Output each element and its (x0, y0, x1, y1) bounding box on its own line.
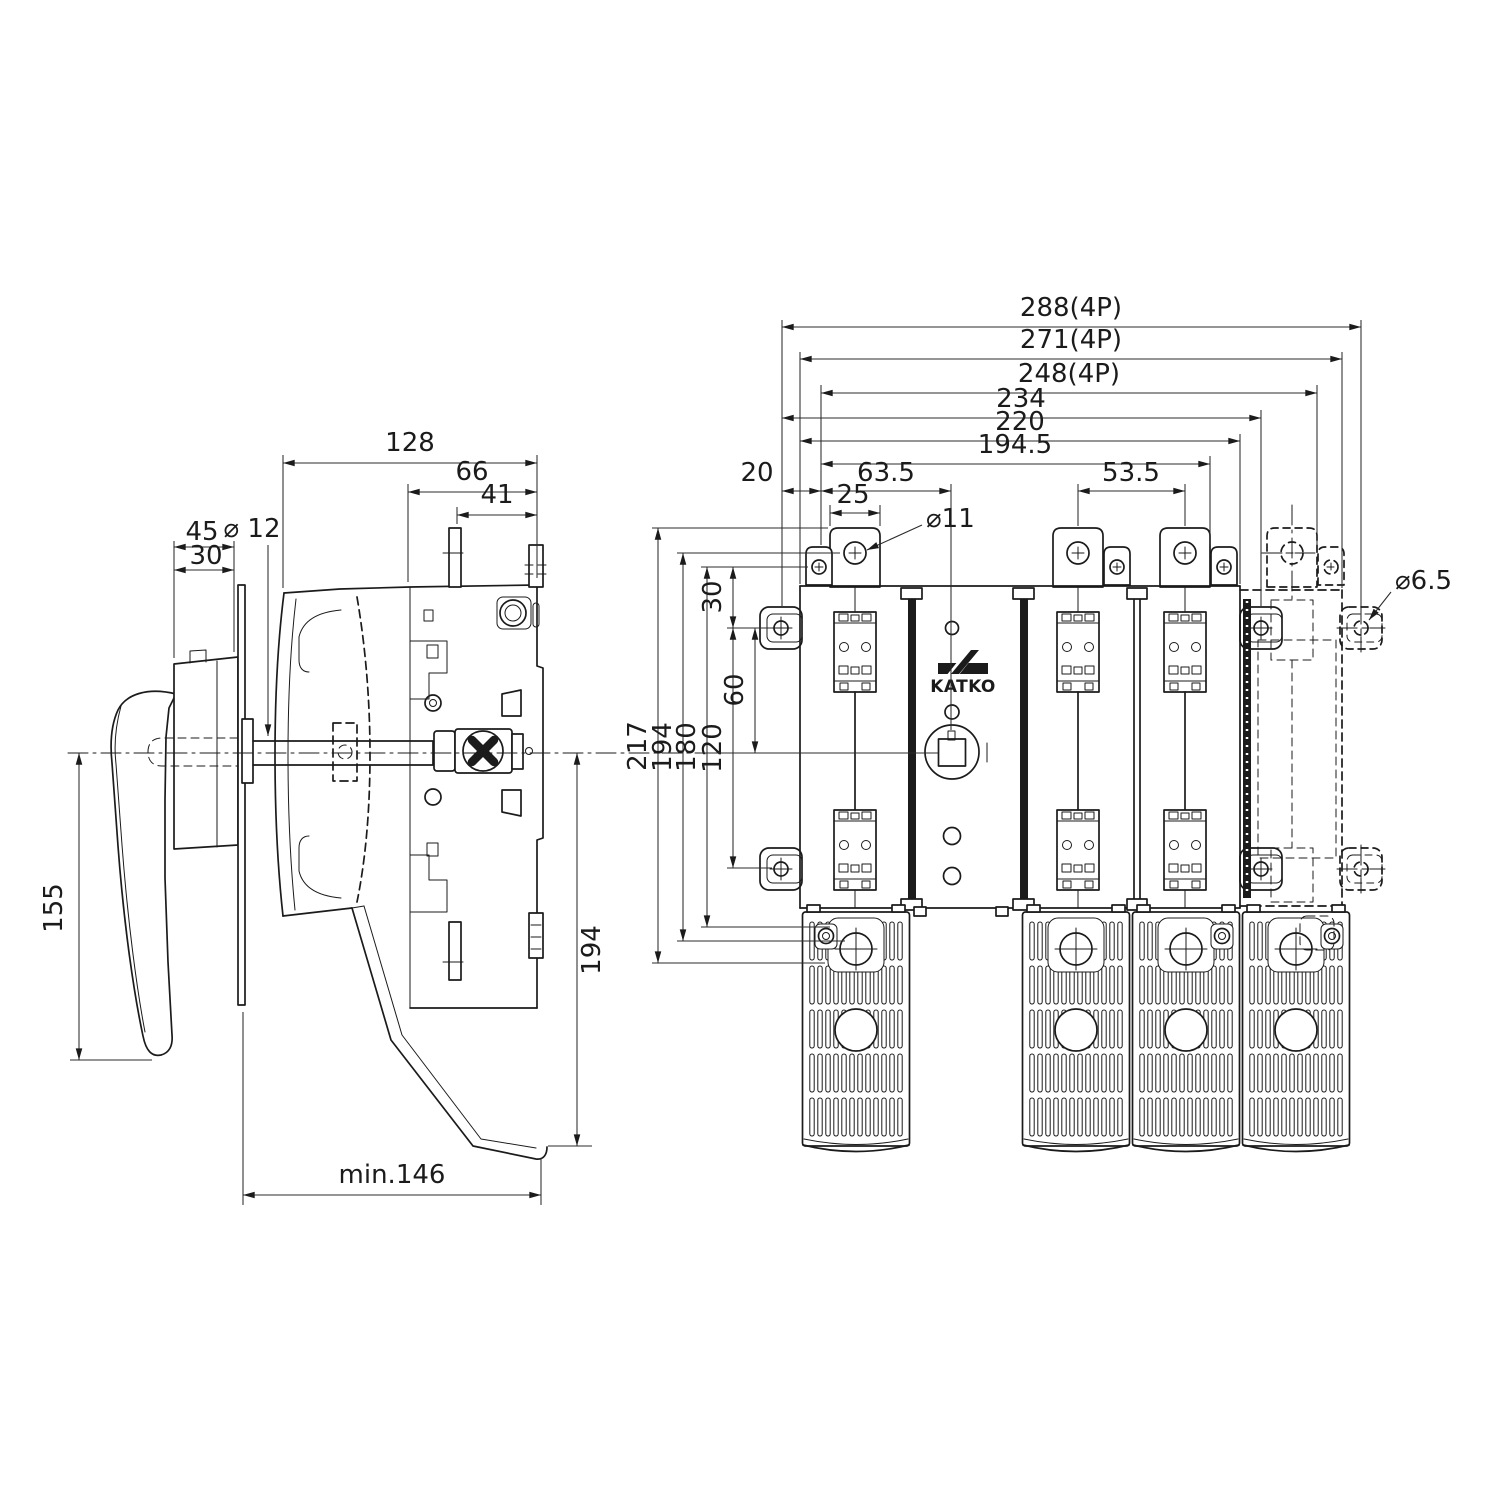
dim-155: 155 (39, 883, 69, 933)
dim-194-side: 194 (577, 925, 607, 975)
side-view: 128 66 41 45 30 ⌀ 12 155 194 min.146 (39, 428, 700, 1205)
dim-53-5: 53.5 (1102, 458, 1160, 488)
shaft-collar (242, 719, 253, 783)
dim-128: 128 (385, 428, 435, 458)
dim-30: 30 (189, 541, 222, 571)
dim-dia6-5: ⌀6.5 (1395, 566, 1452, 596)
katko-logo: KATKO (930, 646, 995, 697)
dim-60: 60 (720, 673, 750, 706)
technical-drawing-page: 128 66 41 45 30 ⌀ 12 155 194 min.146 (0, 0, 1500, 1500)
dim-dia11: ⌀11 (926, 504, 975, 534)
logo-text: KATKO (930, 677, 995, 697)
dim-194-5: 194.5 (978, 430, 1052, 460)
dim-25: 25 (836, 480, 869, 510)
dim-30-front: 30 (698, 580, 728, 613)
handle (111, 691, 176, 1055)
dim-120: 120 (698, 723, 728, 773)
dim-20: 20 (740, 458, 773, 488)
dim-41: 41 (480, 480, 513, 510)
front-dimensions: 288(4P) 271(4P) 248(4P) 234 220 194.5 20… (623, 293, 1452, 963)
dim-288-4p: 288(4P) (1020, 293, 1122, 323)
door-panel (238, 585, 245, 1005)
housing-front (275, 593, 284, 916)
dim-min146: min.146 (339, 1160, 446, 1190)
front-view: KATKO (623, 293, 1452, 1152)
dimensional-drawing: 128 66 41 45 30 ⌀ 12 155 194 min.146 (0, 0, 1500, 1500)
dim-271-4p: 271(4P) (1020, 325, 1122, 355)
dim-dia12: ⌀ 12 (223, 514, 280, 544)
